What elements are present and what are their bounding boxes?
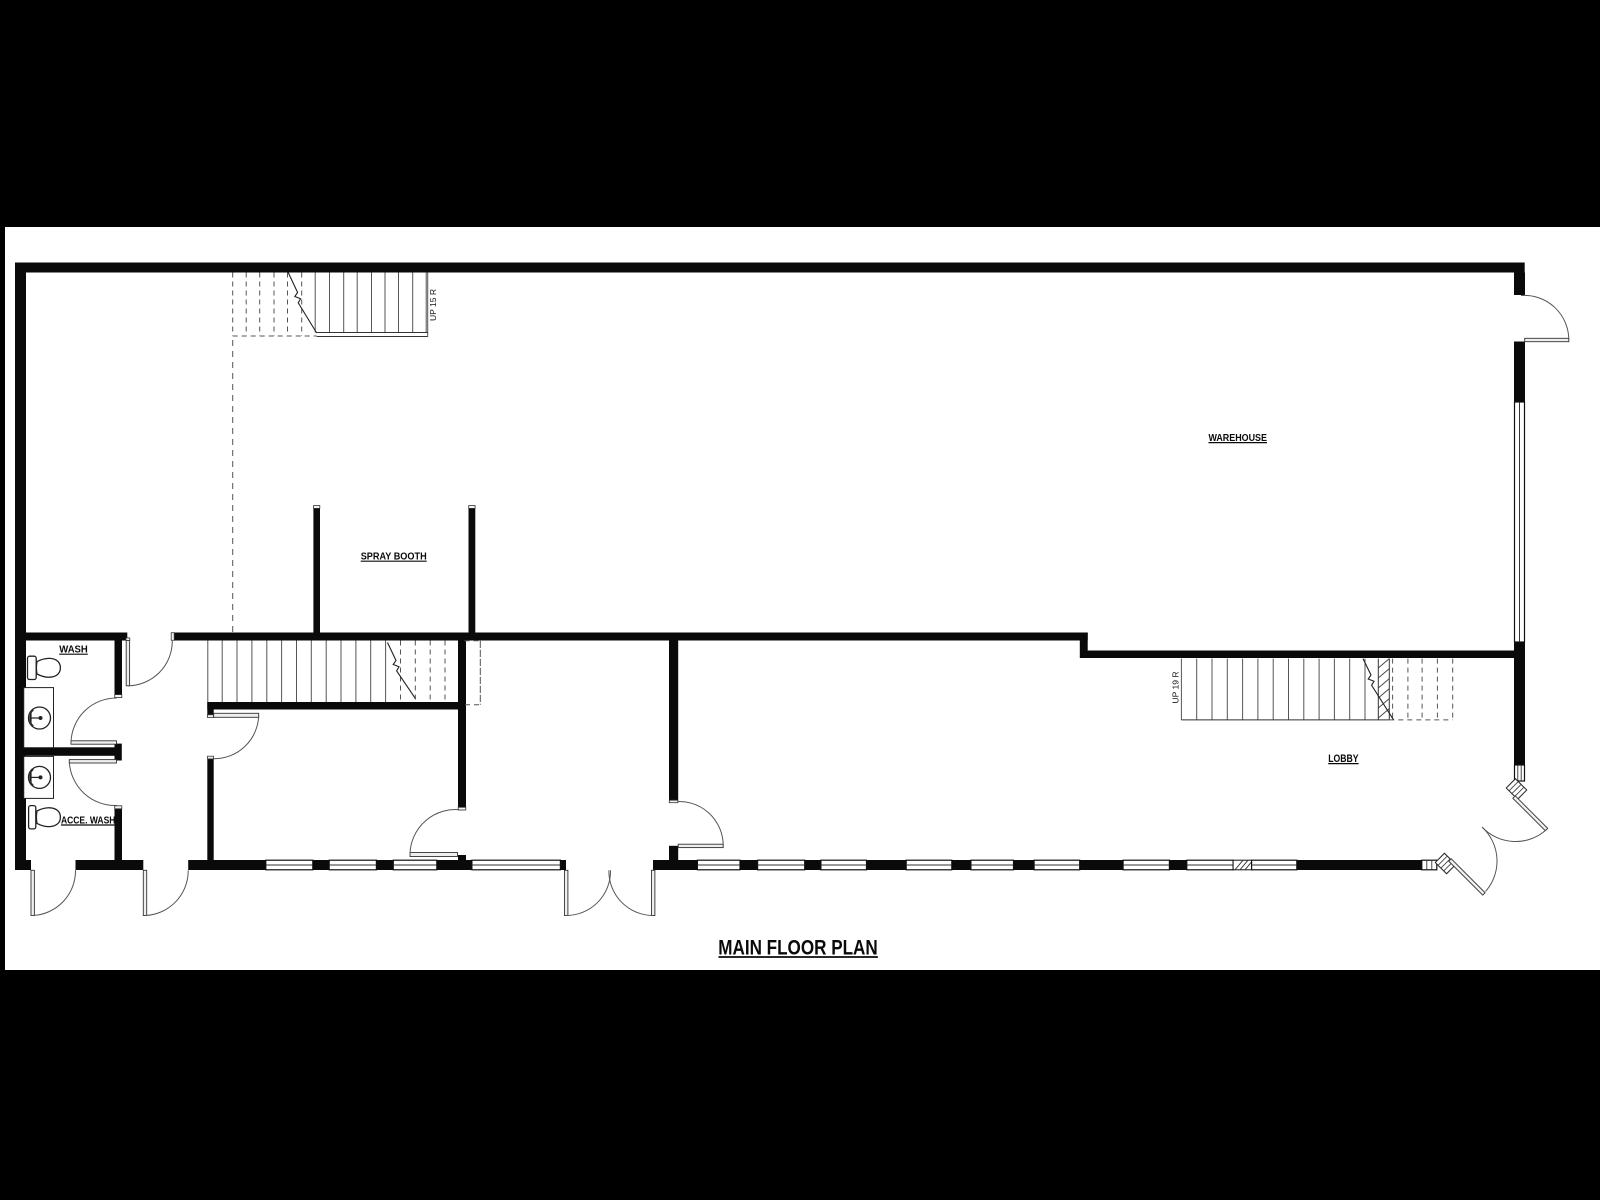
svg-text:UP 15 R: UP 15 R: [428, 289, 438, 321]
svg-text:UP 19 R: UP 19 R: [1171, 672, 1181, 704]
svg-text:MAIN FLOOR PLAN: MAIN FLOOR PLAN: [718, 937, 877, 960]
